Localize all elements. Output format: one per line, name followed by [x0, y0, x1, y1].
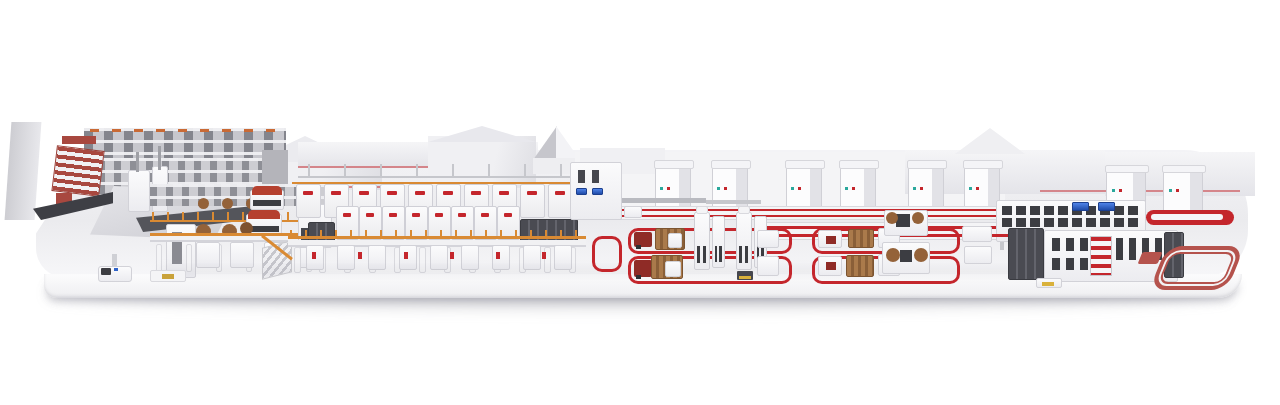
support-column [216, 244, 222, 272]
red-rack-base [56, 193, 72, 205]
converter-red-unit [826, 236, 836, 244]
railing-post [227, 212, 229, 222]
background-wall-left [5, 122, 42, 220]
red-motor-detail [404, 252, 408, 259]
under-deck-cabinet [399, 245, 417, 270]
railing-orange [150, 233, 330, 236]
converter-machine [818, 256, 842, 276]
storage-tower [712, 166, 748, 214]
deck-rail-post [305, 230, 307, 238]
rack-orange-tip [134, 129, 143, 132]
railing-post [182, 212, 184, 222]
deck-rail-post [425, 230, 427, 238]
agv-cart-dark [737, 271, 753, 280]
platform-left-bevel [26, 142, 96, 238]
conveyor-band [578, 206, 1008, 220]
paper-reel [886, 248, 900, 262]
palletizer-tall-slot [1116, 238, 1123, 260]
single-facer-red-top [248, 210, 280, 219]
gallery-window [1016, 206, 1026, 215]
storage-tower [786, 166, 822, 214]
hall-gable-right [955, 128, 1025, 154]
railing-post [272, 212, 274, 222]
finishing-line [0, 0, 1280, 405]
converter-wood-cabinet [655, 228, 685, 250]
platform-top [36, 150, 1248, 278]
hall-roof-center [580, 148, 665, 174]
paper-reel [914, 248, 928, 262]
railing-post [167, 212, 169, 222]
buffer-box [964, 246, 992, 264]
paper-reel [886, 212, 898, 224]
support-column [369, 247, 376, 273]
single-facer-dark-band [253, 200, 281, 206]
roof-pipe-riser [560, 164, 562, 178]
railing-post [287, 212, 289, 222]
prefeeder-tower [736, 212, 752, 270]
dryend-cabinet [570, 162, 622, 220]
display-screen-blue [1098, 202, 1115, 211]
red-motor-detail [358, 252, 362, 259]
prefeeder-tower [754, 216, 767, 268]
palletizer-body [1044, 230, 1178, 282]
dark-glass-section [308, 222, 335, 242]
under-deck-cabinet [461, 245, 479, 270]
support-column [294, 247, 301, 273]
gallery-leg [1119, 242, 1123, 250]
stacker-machine [757, 256, 779, 276]
handling-machine [152, 166, 168, 212]
exit-conveyor-belt [1151, 214, 1223, 220]
deck-rail-post [365, 230, 367, 238]
reel-frame [882, 242, 930, 274]
roll-loader [166, 224, 196, 278]
rack-orange-tip [244, 129, 253, 132]
support-column [494, 247, 501, 273]
production-plant-render [0, 0, 1280, 405]
reel-frame [884, 210, 928, 236]
floor-vehicles [0, 0, 1280, 405]
prefeeder-cap [696, 206, 708, 214]
gallery-leg [1136, 242, 1140, 250]
support-column [344, 247, 351, 273]
support-column [419, 247, 426, 273]
reel-dark-window [896, 214, 910, 227]
highbay-shelves [98, 158, 288, 200]
control-screen-blue [592, 188, 603, 195]
corrugator-module-back [492, 184, 517, 218]
exit-conveyor-red [1146, 210, 1234, 225]
corrugator-module-back [436, 184, 461, 218]
tall-hall-roof [428, 126, 536, 142]
staircase [262, 240, 292, 279]
under-deck-cabinet [196, 242, 220, 268]
hall-gable-left [250, 136, 360, 162]
converter-machine [878, 254, 900, 276]
rack-orange-tip [200, 129, 209, 132]
conveyor-front-wall [758, 222, 1010, 240]
prefeeder-cap [738, 206, 750, 214]
support-column [444, 247, 451, 273]
deck-rail-post [455, 230, 457, 238]
under-deck-cabinet [264, 242, 288, 268]
machine-mast [136, 152, 139, 172]
floor-loop [812, 228, 960, 254]
support-column [569, 247, 576, 273]
operator-cabin [298, 204, 332, 248]
spire-left-facet [533, 126, 557, 160]
gallery-window [1044, 218, 1054, 227]
corrugator-module-front [359, 206, 382, 240]
overhead-pipe [618, 198, 706, 203]
stair-rail-orange [261, 235, 293, 261]
railing-post [212, 212, 214, 222]
gallery-window [1100, 218, 1110, 227]
elevated-deck [288, 240, 586, 247]
converter-machine [818, 230, 842, 248]
gallery-leg [1034, 242, 1038, 250]
deck-rail-post [440, 230, 442, 238]
converter-wood-cabinet [848, 229, 874, 248]
gallery-window [1114, 218, 1124, 227]
gallery-leg [1085, 242, 1089, 250]
stacker-machine [757, 230, 779, 248]
mezzanine-deck [150, 236, 330, 242]
floor-contact-shadow [160, 268, 1040, 275]
floor-loop [812, 256, 960, 284]
gallery-window [1114, 206, 1124, 215]
gallery-leg [1051, 242, 1055, 250]
gallery-leg [1017, 242, 1021, 250]
paper-roll [222, 224, 237, 239]
conveyor-red-stripe [758, 226, 1010, 229]
corrugator-module-front [451, 206, 474, 240]
railing-post [197, 212, 199, 222]
storage-tower [908, 166, 944, 214]
support-column [306, 244, 312, 272]
roof-pipe [298, 176, 580, 178]
railing-post [257, 212, 259, 222]
skylight-redline [298, 166, 538, 168]
delivery-track-rail [1155, 250, 1240, 286]
converter-machine [878, 228, 900, 248]
gallery-window [1030, 218, 1040, 227]
backdrop [0, 0, 1280, 405]
rack-orange-tip [266, 129, 275, 132]
deck-rail-post [350, 230, 352, 238]
storage-tower [840, 166, 876, 214]
storage-tower [964, 166, 1000, 214]
roof-pipe-riser [524, 164, 526, 178]
paper-roll [222, 198, 233, 209]
rack-orange-tip [156, 129, 165, 132]
paper-roll [196, 224, 211, 239]
feeder-wheel [636, 245, 641, 249]
support-column [156, 244, 162, 272]
control-screen-blue [576, 188, 587, 195]
palletizer-window [1080, 238, 1088, 251]
paper-reel [912, 212, 924, 224]
paper-roll [198, 198, 209, 209]
roof-pipe-riser [380, 164, 382, 178]
platform [0, 0, 1280, 405]
deck-rail-post [500, 230, 502, 238]
conveyor-red-stripe [758, 234, 1010, 237]
support-column [394, 247, 401, 273]
support-column [544, 247, 551, 273]
tall-hall [428, 136, 536, 188]
ground-shadow [48, 280, 1228, 306]
converter-white-front [668, 233, 682, 248]
cabin-dark-panel [301, 228, 329, 242]
palletizer-tall-slot [1129, 238, 1136, 260]
deck-rail-post [380, 230, 382, 238]
support-column [246, 244, 252, 272]
transport-conveyor [0, 0, 1280, 405]
dry-end-station [0, 0, 1280, 405]
floor-loop-stub [592, 236, 622, 272]
red-motor-detail [542, 252, 546, 259]
palletizer-window [1080, 258, 1088, 270]
rack-orange-tip [178, 129, 187, 132]
under-deck-cabinet [368, 245, 386, 270]
machine-mast [158, 146, 161, 170]
under-deck-cabinet [298, 242, 322, 268]
corrugator-module-back [324, 184, 349, 218]
single-facer-body [250, 190, 284, 210]
handling-deck [90, 186, 238, 240]
corrugator-module-front [474, 206, 497, 240]
spire-body [533, 158, 580, 174]
rack-orange-tip [90, 129, 99, 132]
dock-ramp-dark [136, 206, 254, 232]
wetend-back-shelves [150, 184, 328, 206]
deck-rail-post [335, 230, 337, 238]
feeder-dark-red [634, 260, 652, 277]
storage-tower [655, 166, 691, 214]
deck-rail-post [545, 230, 547, 238]
red-frame-tower [561, 186, 571, 216]
roof-pipe-riser [308, 164, 310, 178]
gallery-window [1128, 206, 1138, 215]
gallery-leg [1068, 242, 1072, 250]
corrugator-module-front [428, 206, 451, 240]
support-column [186, 244, 192, 272]
rack-side-block [262, 150, 288, 202]
hall-wall-center [575, 152, 1005, 208]
single-facer-red-top [252, 186, 282, 195]
agv-cart-yellow [739, 276, 751, 279]
support-column [469, 247, 476, 273]
spire-right-facet [556, 126, 580, 160]
corrugator-module-front [382, 206, 405, 240]
roll-conveyor-red-rack [51, 145, 104, 197]
agv-mast [112, 254, 117, 267]
palletizer-window [1066, 258, 1074, 270]
deck-rail-post [515, 230, 517, 238]
gallery-window [1030, 206, 1040, 215]
conveyor-red-stripe [578, 209, 1008, 211]
red-motor-detail [450, 252, 454, 259]
roll-storage-racks [0, 0, 1280, 405]
railing-orange [150, 220, 328, 222]
corrugator-module-back [548, 184, 573, 218]
hall-roof-right [905, 150, 1105, 194]
under-deck-cabinet [523, 245, 541, 270]
gallery-leg [1102, 242, 1106, 250]
palletizer-glass-end [1164, 232, 1184, 278]
under-deck-cabinet [230, 242, 254, 268]
highbay-shelves [84, 128, 286, 174]
under-deck-cabinet [554, 245, 572, 270]
deck-rail-post [530, 230, 532, 238]
deck-rail-post [575, 230, 577, 238]
gallery-leg [1000, 242, 1004, 250]
palletizer-tall-slot [1155, 238, 1162, 260]
paper-roll [246, 198, 257, 209]
support-column [519, 247, 526, 273]
single-facer-dark-band [249, 226, 279, 232]
pallet-station [150, 270, 186, 282]
red-rack-top [62, 136, 96, 144]
agv-windshield [101, 268, 111, 275]
roof-pipe-riser [452, 164, 454, 178]
gallery-window [1072, 218, 1082, 227]
deck-rail-post [395, 230, 397, 238]
hall-redline-right [1040, 190, 1240, 192]
converter-red-unit [826, 262, 836, 270]
storage-towers [0, 0, 1280, 405]
deck-rail-post [470, 230, 472, 238]
corrugator-module-back [352, 184, 377, 218]
display-screen-blue [1072, 202, 1089, 211]
pallet-station-yellow [162, 274, 174, 279]
converter-wood-cabinet [846, 255, 874, 277]
rack-orange-tip [222, 129, 231, 132]
agv-body [98, 266, 132, 282]
cabinet-dark-slot [592, 170, 599, 183]
wet-end-splicers [0, 0, 1280, 405]
reel-dark-window [900, 250, 912, 262]
red-motor-detail [496, 252, 500, 259]
railing-post [317, 212, 319, 222]
gallery-window [1058, 206, 1068, 215]
storage-tower [1106, 170, 1146, 214]
deck-rail-post [410, 230, 412, 238]
deck-rail-post [290, 230, 292, 238]
overhead-pipe [706, 200, 761, 204]
railing-post [242, 212, 244, 222]
gallery-window [1086, 206, 1096, 215]
roll-loader-core [172, 232, 182, 264]
corrugator-module-back [296, 184, 321, 218]
gallery-window [1058, 218, 1068, 227]
corrugator-module-front [405, 206, 428, 240]
palletizer-window [1066, 238, 1074, 251]
gallery-window [1044, 206, 1054, 215]
palletizer-glass-end [1008, 228, 1044, 280]
palletizer-window [1052, 238, 1060, 251]
prefeeder-tower [694, 212, 710, 270]
delivery-loop [0, 0, 1280, 405]
outfeed-box [624, 206, 642, 218]
service-cart-yellow [1042, 282, 1054, 286]
hall-roof-left [232, 150, 382, 190]
under-deck-cabinet [430, 245, 448, 270]
converter-wood-cabinet [651, 255, 683, 279]
walkway-rail-orange [292, 182, 580, 184]
rack-orange-tip [112, 129, 121, 132]
service-cart [1036, 278, 1062, 288]
sorter-gallery [996, 200, 1146, 242]
hall-redline-left [232, 186, 382, 188]
corrugator-module-back [380, 184, 405, 218]
feeder-dark-red [634, 232, 652, 247]
gallery-window [1086, 218, 1096, 227]
background-buildings [0, 0, 1280, 405]
agv-blue-light [114, 268, 118, 271]
roof-pipe-riser [416, 164, 418, 178]
floor-loop [628, 228, 792, 254]
buffer-box [962, 226, 992, 242]
under-deck-cabinet [492, 245, 510, 270]
support-column [319, 247, 326, 273]
skylight-roof [298, 142, 538, 168]
highbay-rack-front [98, 158, 288, 200]
corrugator-module-front [336, 206, 359, 240]
delivery-connector [1138, 252, 1163, 264]
corrugator-module-back [464, 184, 489, 218]
hall-roof-far-right [1105, 152, 1255, 196]
gallery-window [1002, 206, 1012, 215]
roll-handling-area [0, 0, 1280, 405]
conveyor-red-stripe [578, 215, 1008, 217]
roof-pipe-riser [488, 164, 490, 178]
gallery-window [1002, 218, 1012, 227]
deck-rail-orange [288, 236, 586, 239]
red-motor-detail [312, 252, 316, 259]
railing-post [152, 212, 154, 222]
platform-front-face [44, 274, 1242, 298]
conversion-cells [0, 0, 1280, 405]
under-deck-cabinet [337, 245, 355, 270]
gallery-window [1128, 218, 1138, 227]
palletizer-red-stack [1090, 236, 1112, 276]
dock-ramp-dark [33, 192, 113, 220]
cabinet-dark-slot [578, 170, 585, 183]
deck-rail-post [320, 230, 322, 238]
storage-tower [1163, 170, 1203, 214]
converter-white-front [665, 261, 681, 277]
corrugator-line [0, 0, 1280, 405]
prefeeder-tower [712, 216, 725, 268]
wetend-back-rack [150, 184, 328, 206]
corrugator-module-back [408, 184, 433, 218]
gallery-window [1016, 218, 1026, 227]
gallery-window [1072, 206, 1082, 215]
roof-pipe-riser [344, 164, 346, 178]
corrugator-module-back [520, 184, 545, 218]
railing-post [302, 212, 304, 222]
gallery-red-line [996, 234, 1146, 237]
floor-loop [628, 256, 792, 284]
feeder-wheel [636, 275, 641, 279]
dark-glass-section [520, 219, 578, 242]
deck-rail-post [485, 230, 487, 238]
handling-machine [128, 170, 150, 212]
palletizer-window [1052, 258, 1060, 270]
under-deck-cabinet [306, 245, 324, 270]
